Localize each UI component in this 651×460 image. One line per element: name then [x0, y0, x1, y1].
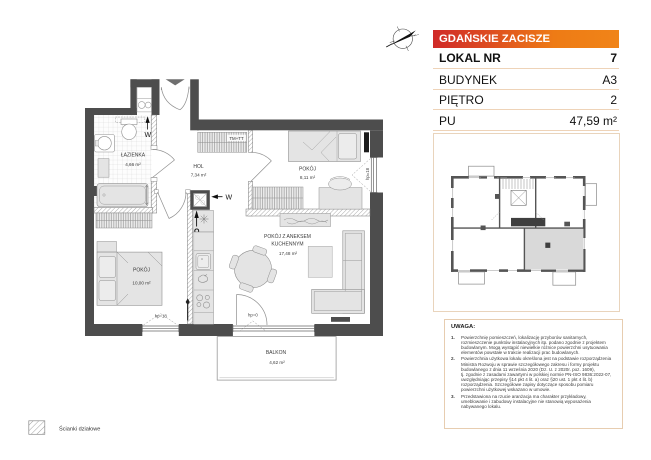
svg-text:POKÓJ Z ANEKSEM: POKÓJ Z ANEKSEM — [264, 233, 311, 240]
svg-text:7,34 m²: 7,34 m² — [191, 172, 207, 177]
svg-text:10,00 m²: 10,00 m² — [132, 280, 151, 285]
svg-text:Ścianki działowe: Ścianki działowe — [59, 425, 100, 433]
svg-text:POKÓJ: POKÓJ — [133, 267, 150, 274]
svg-text:4,66 m²: 4,66 m² — [125, 162, 141, 167]
svg-text:KUCHENNYM: KUCHENNYM — [271, 242, 303, 248]
svg-text:POKÓJ: POKÓJ — [299, 166, 316, 173]
svg-text:W: W — [145, 132, 152, 139]
svg-text:hp=18: hp=18 — [155, 313, 168, 318]
svg-text:W: W — [226, 195, 233, 202]
svg-text:hp=18: hp=18 — [365, 167, 370, 180]
svg-text:4,62 m²: 4,62 m² — [269, 360, 285, 365]
svg-text:BALKON: BALKON — [266, 350, 287, 356]
svg-text:HOL: HOL — [193, 164, 204, 170]
svg-text:hp=0: hp=0 — [248, 312, 258, 317]
svg-text:ŁAZIENKA: ŁAZIENKA — [121, 153, 146, 159]
svg-text:17,48 m²: 17,48 m² — [279, 251, 298, 256]
svg-text:8,11 m²: 8,11 m² — [300, 175, 316, 180]
svg-text:TM+TT: TM+TT — [229, 136, 244, 141]
